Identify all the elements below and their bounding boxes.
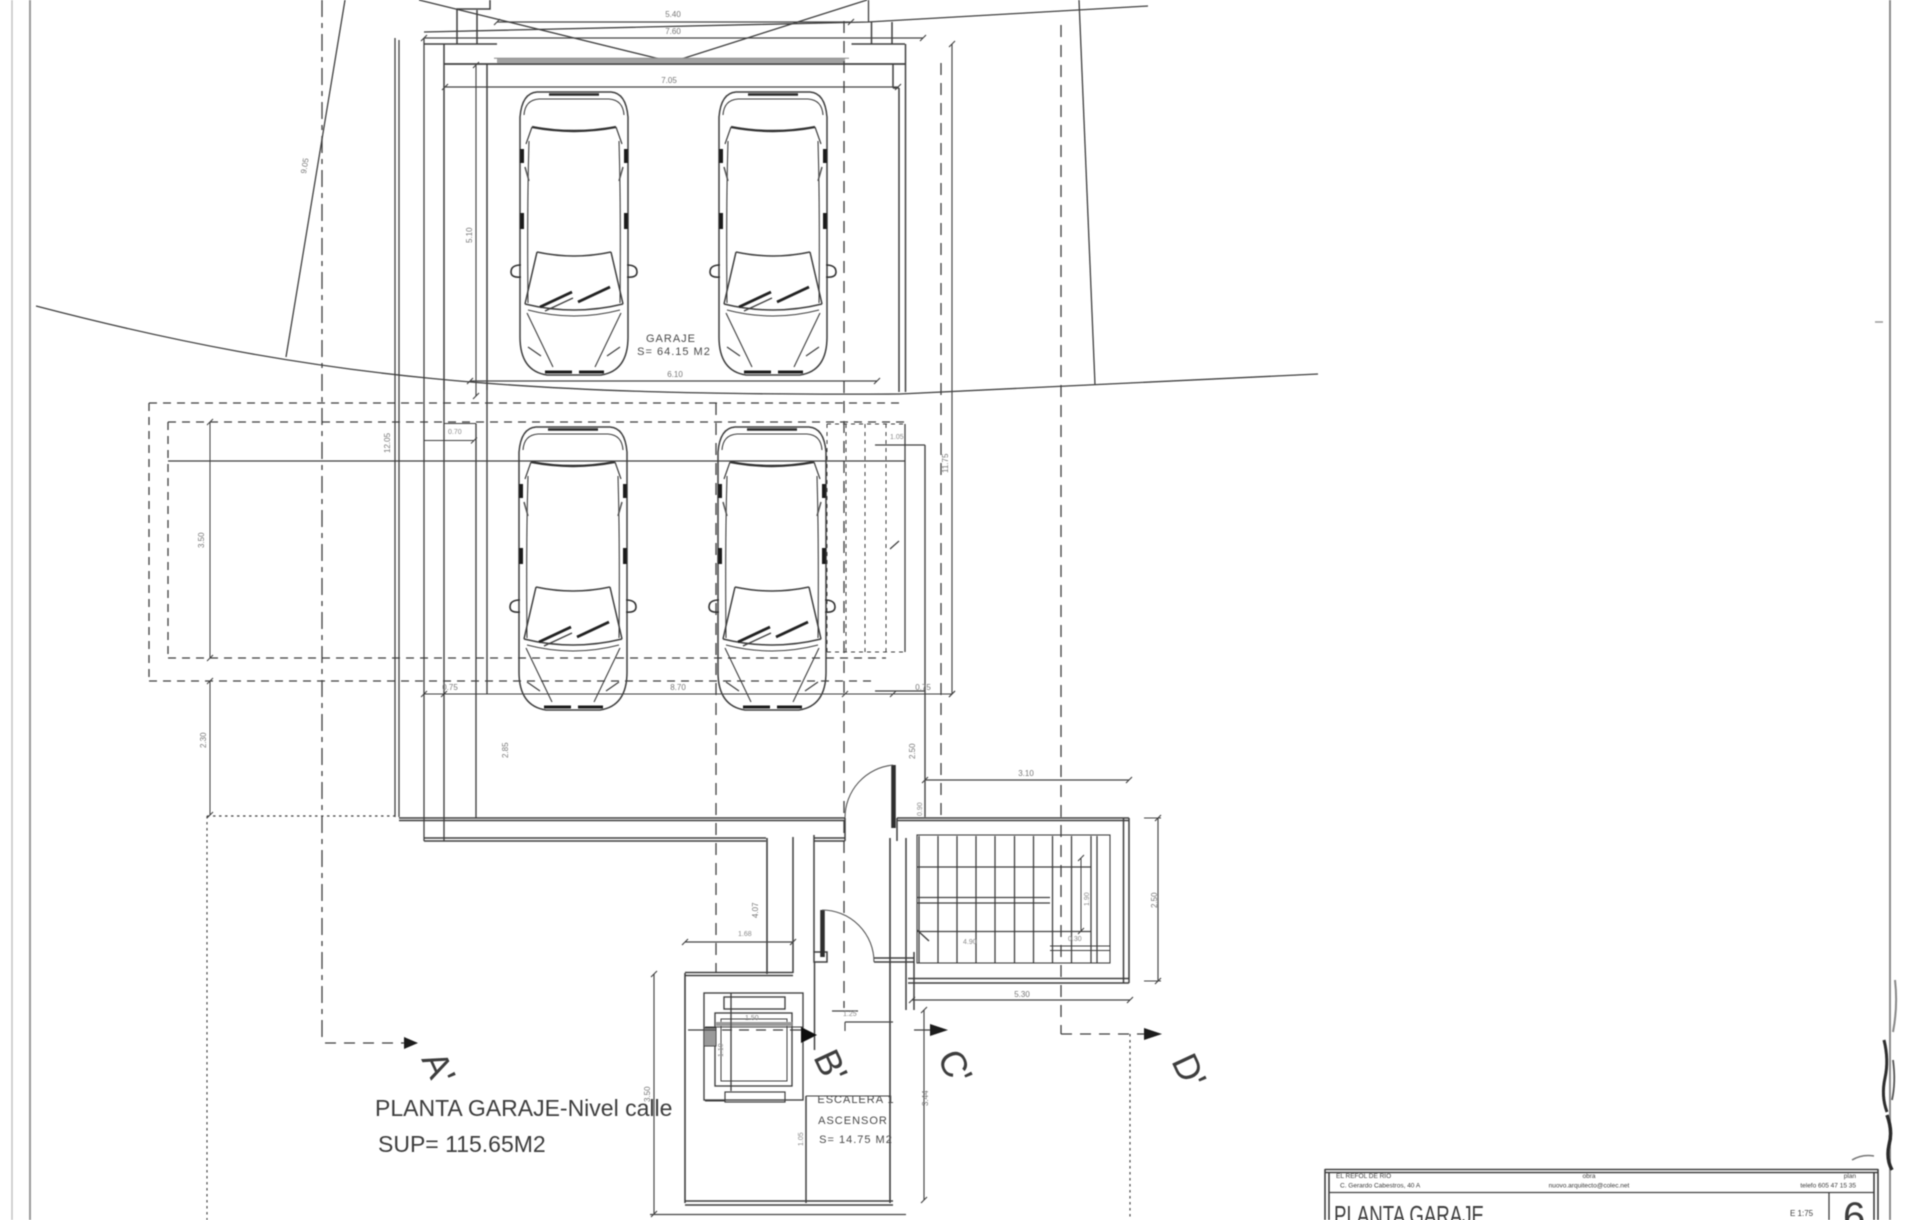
svg-text:S= 64.15 M2: S= 64.15 M2 (637, 346, 711, 358)
svg-text:0.30: 0.30 (1068, 936, 1082, 943)
svg-text:12.05: 12.05 (383, 432, 392, 453)
svg-text:3.10: 3.10 (1018, 769, 1034, 778)
svg-text:0.90: 0.90 (917, 802, 924, 816)
svg-text:5.30: 5.30 (1014, 990, 1030, 999)
svg-text:nuovo.arquitecto@colec.net: nuovo.arquitecto@colec.net (1549, 1183, 1630, 1190)
svg-text:1.50: 1.50 (745, 1015, 759, 1022)
svg-text:telefo 605 47 15 35: telefo 605 47 15 35 (1800, 1183, 1856, 1190)
svg-text:2.50: 2.50 (908, 743, 917, 759)
svg-text:SUP= 115.65M2: SUP= 115.65M2 (378, 1131, 546, 1157)
svg-text:PLANTA GARAJE: PLANTA GARAJE (1334, 1200, 1484, 1220)
svg-text:C. Gerardo Cabestros, 40 A: C. Gerardo Cabestros, 40 A (1340, 1183, 1421, 1190)
svg-text:7.60: 7.60 (665, 27, 681, 36)
svg-text:2.30: 2.30 (199, 732, 208, 748)
svg-text:0.70: 0.70 (448, 429, 462, 436)
svg-text:5.10: 5.10 (465, 227, 474, 243)
svg-text:ESCALERA 1: ESCALERA 1 (817, 1094, 894, 1106)
svg-text:3.50: 3.50 (197, 532, 206, 548)
svg-text:1.05: 1.05 (798, 1132, 805, 1146)
svg-text:E 1:75: E 1:75 (1790, 1209, 1814, 1218)
svg-text:4.90: 4.90 (963, 939, 977, 946)
svg-text:1.25: 1.25 (843, 1011, 857, 1018)
svg-text:3.44: 3.44 (921, 1090, 930, 1106)
svg-text:0.75: 0.75 (442, 683, 458, 692)
svg-text:PLANTA GARAJE-Nivel calle: PLANTA GARAJE-Nivel calle (375, 1095, 672, 1121)
svg-text:EL REFOL DE RIO: EL REFOL DE RIO (1336, 1173, 1391, 1180)
svg-text:7.05: 7.05 (661, 76, 677, 85)
svg-text:ASCENSOR: ASCENSOR (818, 1115, 888, 1127)
svg-text:6.10: 6.10 (667, 370, 683, 379)
svg-text:4.07: 4.07 (751, 902, 760, 918)
svg-text:6: 6 (1843, 1195, 1865, 1220)
svg-text:5.40: 5.40 (665, 10, 681, 19)
svg-text:11.75: 11.75 (941, 453, 950, 473)
svg-text:S= 14.75 M2: S= 14.75 M2 (819, 1134, 893, 1146)
svg-text:0.75: 0.75 (915, 683, 931, 692)
svg-text:1.90: 1.90 (1084, 892, 1091, 906)
svg-text:1.10: 1.10 (718, 1043, 725, 1057)
svg-text:1.05: 1.05 (890, 434, 904, 441)
svg-text:GARAJE: GARAJE (646, 333, 696, 345)
svg-text:obra: obra (1582, 1173, 1595, 1180)
svg-text:1.68: 1.68 (738, 931, 752, 938)
svg-text:plan: plan (1844, 1173, 1857, 1180)
svg-text:2.85: 2.85 (501, 742, 510, 758)
svg-text:8.70: 8.70 (670, 683, 686, 692)
